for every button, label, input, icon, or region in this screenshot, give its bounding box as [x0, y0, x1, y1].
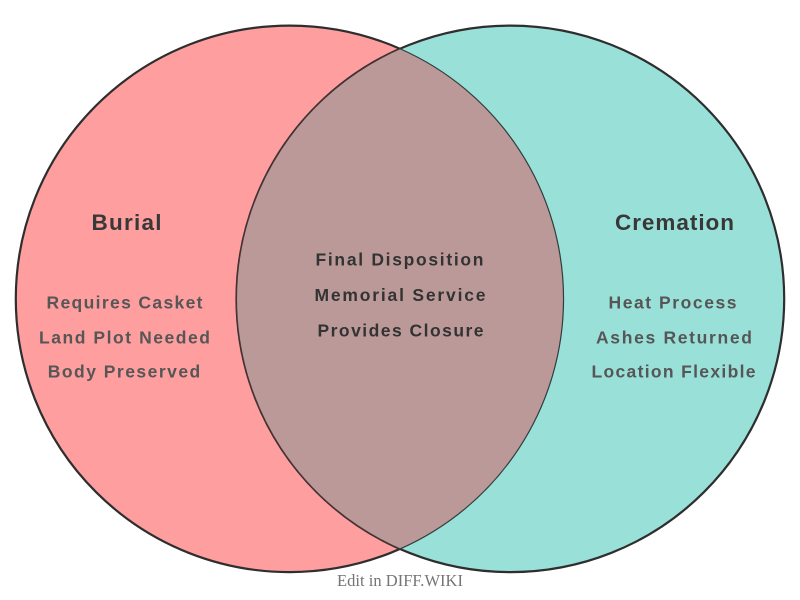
svg-text:Edit in DIFF.WIKI: Edit in DIFF.WIKI [337, 571, 463, 590]
svg-text:Heat Process: Heat Process [609, 293, 737, 313]
svg-text:Location Flexible: Location Flexible [592, 361, 756, 381]
svg-text:Memorial Service: Memorial Service [315, 285, 486, 305]
svg-text:Final Disposition: Final Disposition [316, 249, 484, 269]
svg-text:Requires Casket: Requires Casket [47, 293, 203, 313]
svg-text:Burial: Burial [92, 210, 162, 235]
svg-text:Land Plot Needed: Land Plot Needed [39, 328, 210, 348]
svg-text:Provides Closure: Provides Closure [318, 321, 484, 341]
svg-text:Cremation: Cremation [615, 210, 734, 235]
